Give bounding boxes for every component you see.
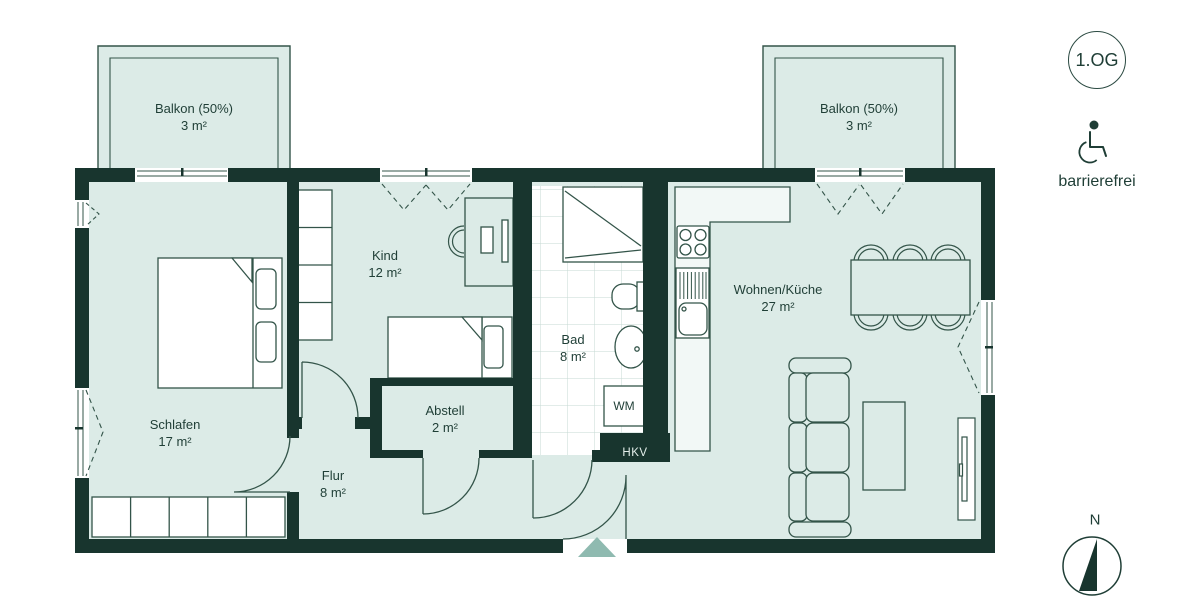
floorplan-drawing: [0, 0, 1200, 600]
shower: [563, 187, 643, 262]
room-label-bedroom: Schlafen17 m²: [150, 416, 201, 450]
accessibility-label: barrierefrei: [1058, 173, 1135, 191]
sofa: [789, 358, 851, 537]
room-label-balcony-left: Balkon (50%)3 m²: [155, 100, 233, 134]
wheelchair-icon: [1079, 121, 1106, 163]
double-bed: [158, 258, 282, 388]
kitchen-sink: [676, 268, 709, 338]
compass-north-label: N: [1090, 512, 1101, 529]
compass-needle: [1079, 539, 1097, 591]
room-label-storage: Abstell2 m²: [425, 402, 464, 436]
entrance: [563, 537, 627, 557]
room-label-balcony-right: Balkon (50%)3 m²: [820, 100, 898, 134]
dining-table: [851, 260, 970, 315]
room-label-living-kitchen: Wohnen/Küche27 m²: [734, 281, 823, 315]
hkv-label: HKV: [622, 447, 647, 459]
room-label-bath: Bad8 m²: [560, 331, 586, 365]
tv-sideboard: [958, 418, 975, 520]
washbasin: [615, 326, 647, 368]
room-label-hall: Flur8 m²: [320, 467, 346, 501]
compass: [1063, 537, 1121, 595]
room-label-kids: Kind12 m²: [368, 247, 401, 281]
single-bed: [388, 317, 512, 378]
floor-badge: 1.OG: [1068, 31, 1126, 89]
toilet: [612, 282, 648, 311]
washing-machine-label: WM: [613, 399, 634, 413]
wardrobe-bedroom: [92, 497, 285, 537]
floorplan-canvas: Balkon (50%)3 m² Balkon (50%)3 m² Schlaf…: [0, 0, 1200, 600]
